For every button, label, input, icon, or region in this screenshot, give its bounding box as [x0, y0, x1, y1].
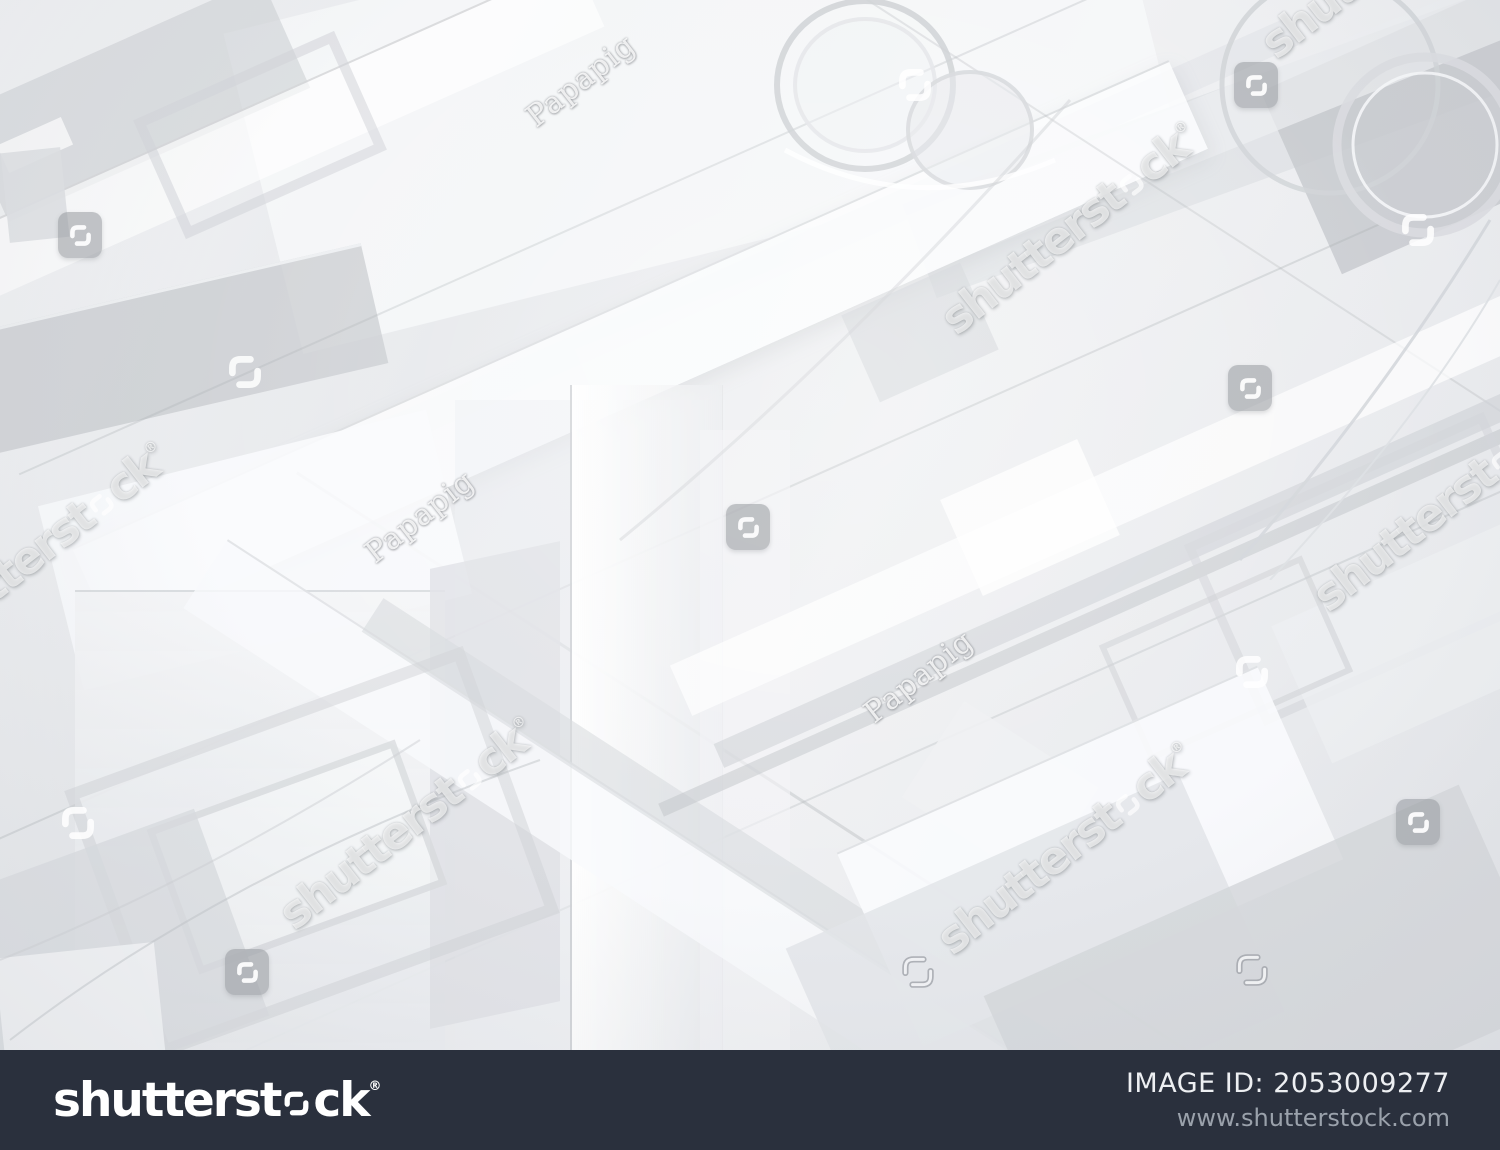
shutterstock-mark-icon: [1405, 809, 1432, 836]
contributor-watermark: Papapig: [519, 28, 642, 135]
shutterstock-logo-watermark-boxed: [58, 212, 102, 258]
shutterstock-logo-watermark-white: [1231, 651, 1273, 693]
shutterstock-watermark-text: shutterstck®: [1303, 388, 1500, 622]
contributor-watermark: Papapig: [857, 624, 980, 731]
shutterstock-watermark-text: shutterstck®: [269, 706, 548, 940]
website-url: www.shutterstock.com: [1126, 1106, 1450, 1130]
shutterstock-mark-icon: [897, 951, 939, 993]
shutterstock-mark-icon: [451, 761, 489, 799]
shutterstock-mark-icon: [1231, 651, 1273, 693]
shutterstock-mark-icon: [1237, 375, 1264, 402]
shutterstock-mark-icon: [57, 802, 99, 844]
shutterstock-logo-watermark-boxed: [726, 504, 770, 550]
shutterstock-mark-icon: [1109, 786, 1147, 824]
shutterstock-logo-watermark-boxed: [225, 949, 269, 995]
shutterstock-mark-icon: [83, 486, 121, 524]
stock-photo-preview: shutterstck®shutterstck®shutterstck®shut…: [0, 0, 1500, 1150]
shutterstock-mark-icon: [1231, 949, 1273, 991]
shutterstock-mark-icon: [1485, 443, 1500, 481]
shutterstock-mark-icon: [735, 514, 762, 541]
contributor-watermark: Papapig: [358, 464, 481, 571]
shutterstock-mark-icon: [894, 64, 936, 106]
shutterstock-watermark-text: shutterstck®: [0, 431, 179, 665]
shutterstock-logo-watermark-outline: [897, 951, 939, 993]
shutterstock-wordmark: shutterstck®: [53, 1077, 381, 1124]
shutterstock-watermark-text: shutterstck®: [927, 731, 1206, 965]
shutterstock-logo-watermark-white: [57, 802, 99, 844]
shutterstock-watermark-text: shutterstck®: [1251, 0, 1500, 69]
watermark-layer: shutterstck®shutterstck®shutterstck®shut…: [0, 0, 1500, 1050]
shutterstock-watermark-text: shutterstck®: [931, 111, 1210, 345]
shutterstock-mark-icon: [1397, 209, 1439, 251]
image-id: IMAGE ID: 2053009277: [1126, 1070, 1450, 1097]
footer-bar: shutterstck® IMAGE ID: 2053009277 www.sh…: [0, 1050, 1500, 1150]
shutterstock-logo-watermark-white: [894, 64, 936, 106]
image-meta: IMAGE ID: 2053009277 www.shutterstock.co…: [1126, 1070, 1450, 1130]
shutterstock-logo-watermark-white: [224, 351, 266, 393]
shutterstock-mark-icon: [224, 351, 266, 393]
shutterstock-mark-icon: [234, 959, 261, 986]
shutterstock-logo-watermark-boxed: [1234, 62, 1278, 108]
shutterstock-logo-watermark-outline: [1231, 949, 1273, 991]
shutterstock-mark-icon: [1113, 166, 1151, 204]
shutterstock-mark-icon: [67, 222, 94, 249]
shutterstock-mark-icon: [281, 1088, 312, 1119]
shutterstock-logo-watermark-boxed: [1396, 799, 1440, 845]
shutterstock-logo-watermark-boxed: [1228, 365, 1272, 411]
shutterstock-logo-watermark-white: [1397, 209, 1439, 251]
shutterstock-mark-icon: [1243, 72, 1270, 99]
